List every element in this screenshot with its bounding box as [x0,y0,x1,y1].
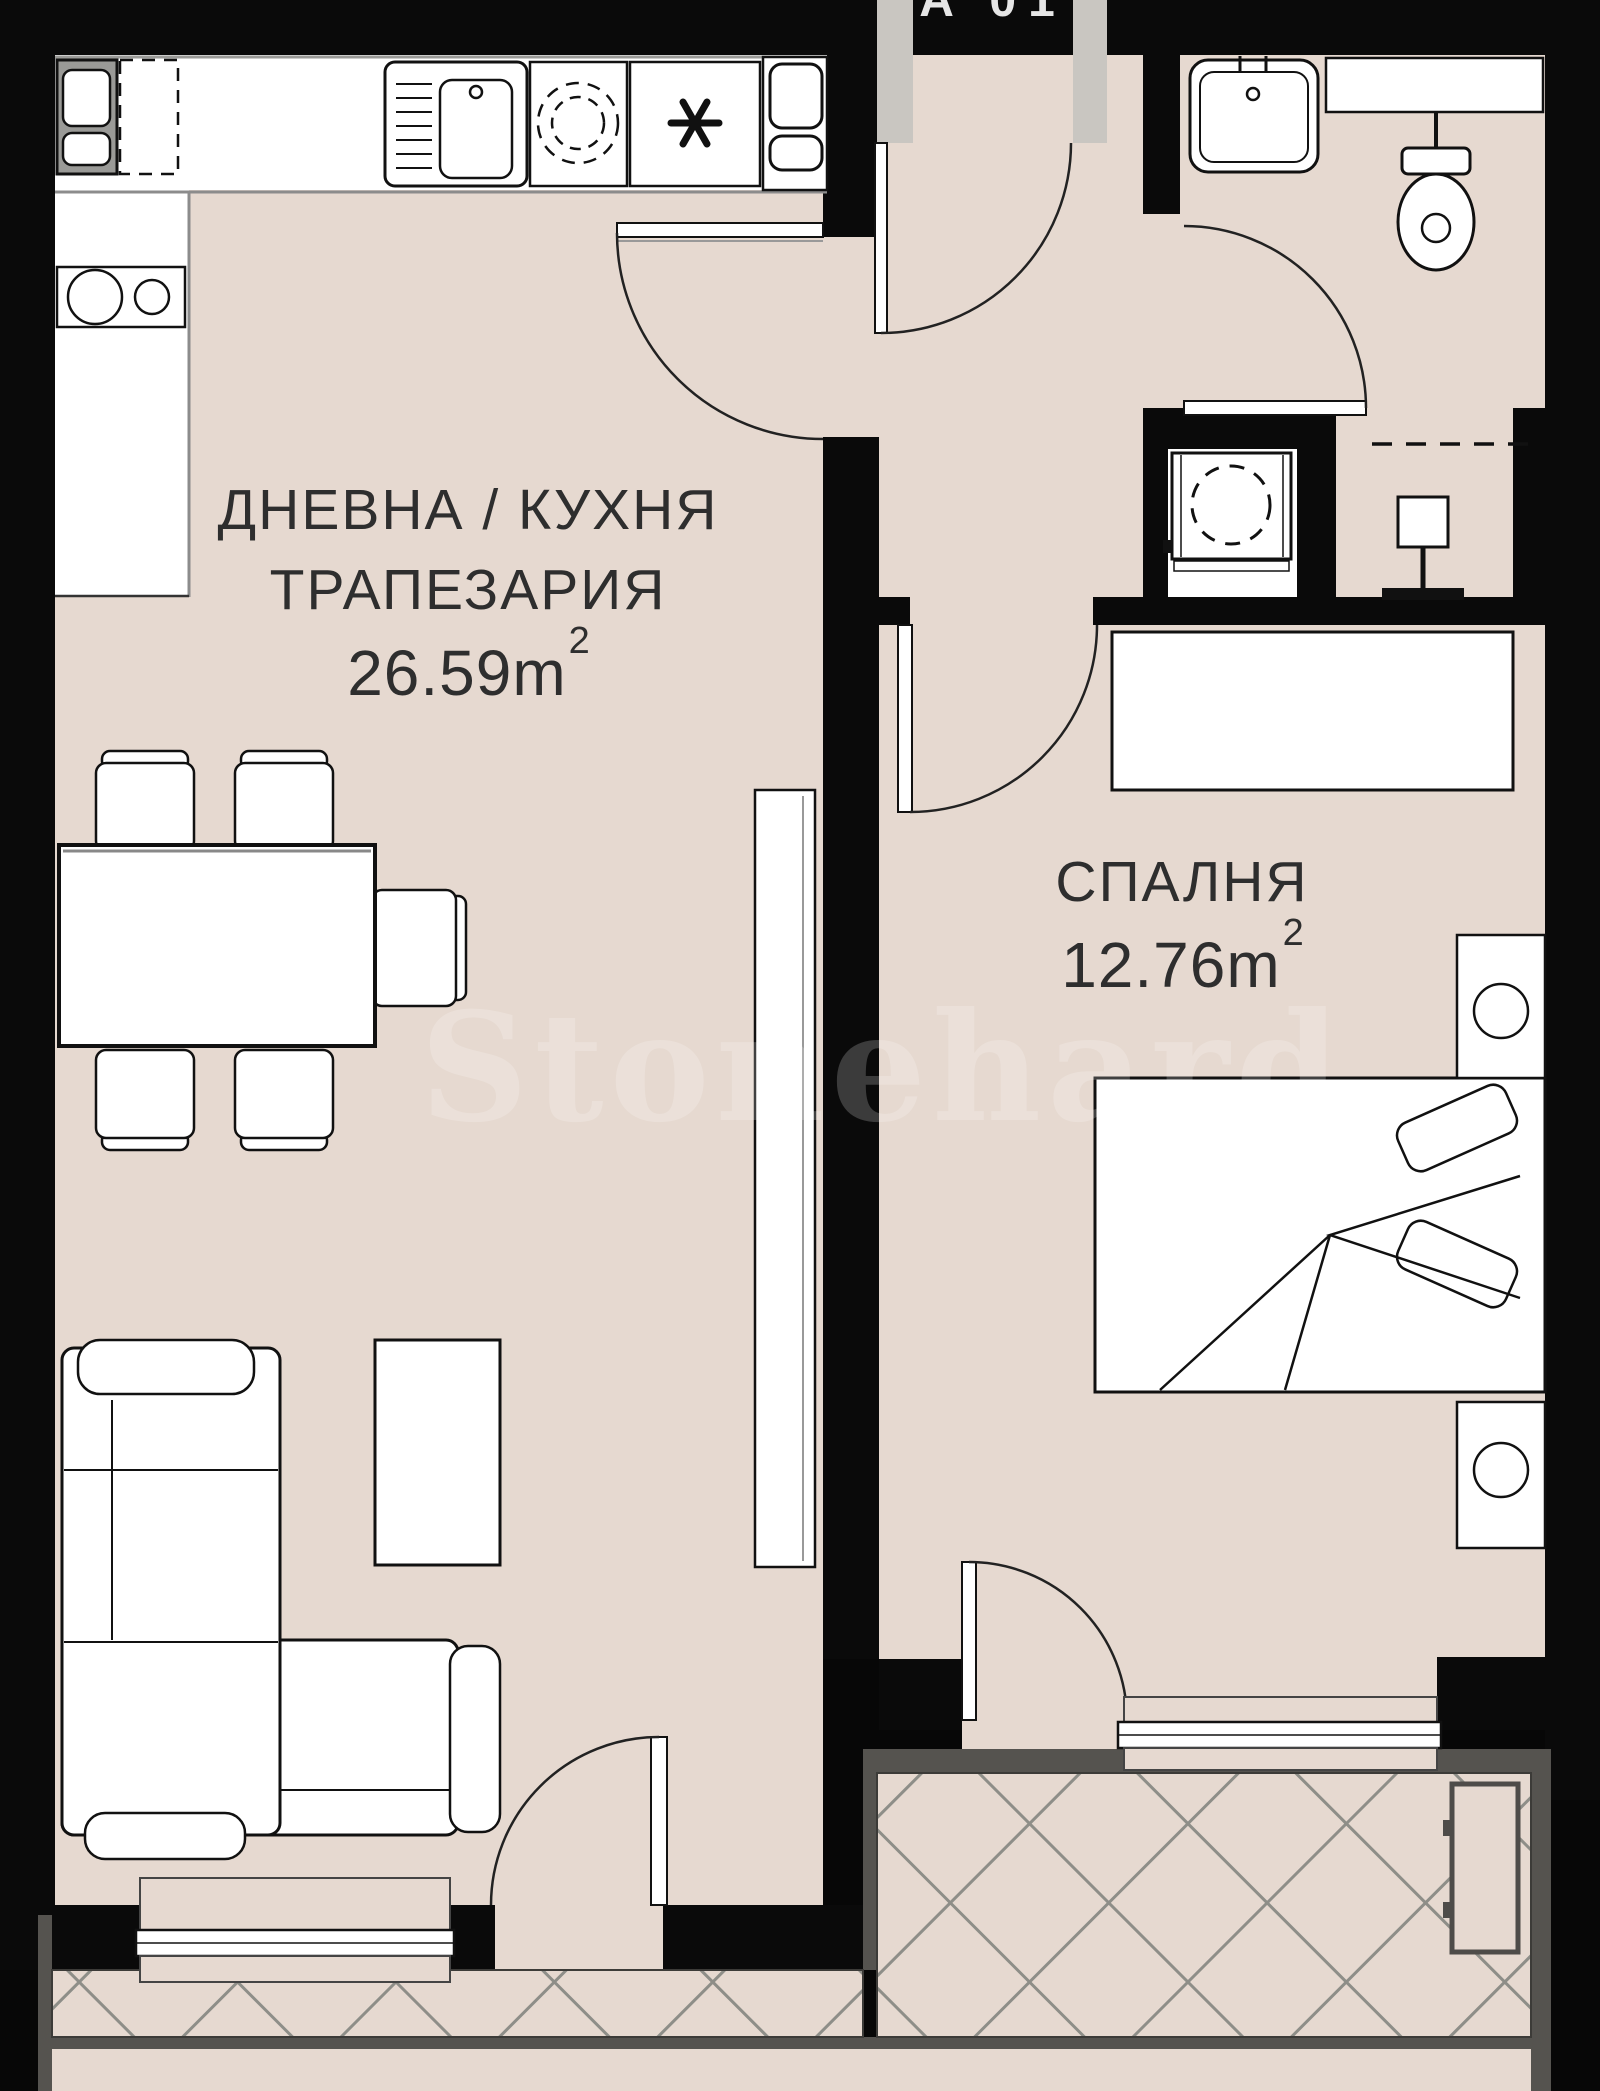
living-room-name-line2: ТРАПЕЗАРИЯ [218,550,719,630]
dining-table [59,845,375,1046]
kitchen-cabinet-icon [120,60,178,174]
bed [1095,1078,1545,1392]
apartment-number-label: A 01 [905,0,1081,42]
living-room-area: 26.59m2 [218,636,719,710]
coffee-table [375,1340,500,1565]
ac-unit [1443,1784,1518,1952]
tv-unit [755,790,815,1567]
stove-burners-icon [57,267,185,327]
kitchen-sink-icon [385,62,527,186]
cooktop-icon [530,62,627,186]
bedroom-name: СПАЛНЯ [1055,842,1308,922]
living-window [136,1878,454,1982]
wardrobe [1112,632,1513,790]
oven-icon [630,62,760,186]
washing-machine-icon [1163,449,1297,597]
floor-plan: A 01 ДНЕВНА / КУХНЯ ТРАПЕЗАРИЯ 26.59m2 С… [0,0,1600,2091]
bedroom-window [1118,1697,1441,1770]
bathroom-sink-icon [1190,56,1318,172]
fridge-icon [57,60,117,174]
bathroom-counter [1326,58,1543,112]
kitchen-end-unit-icon [763,57,827,190]
living-room-name-line1: ДНЕВНА / КУХНЯ [218,470,719,550]
bedroom-area: 12.76m2 [1055,928,1308,1002]
apartment-number-text: A 01 [905,0,1081,28]
living-room-label: ДНЕВНА / КУХНЯ ТРАПЕЗАРИЯ 26.59m2 [218,470,719,710]
plan-canvas [0,0,1600,2091]
bedroom-label: СПАЛНЯ 12.76m2 [1055,842,1308,1002]
